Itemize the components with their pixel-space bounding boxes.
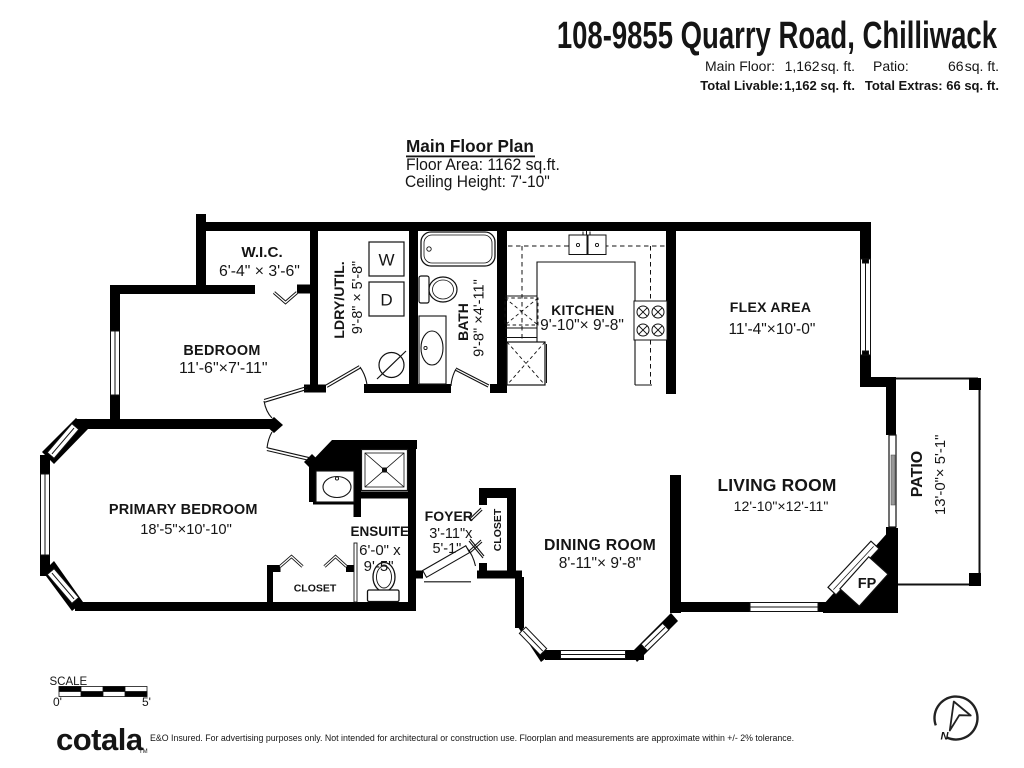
svg-text:Ceiling Height: 7'-10": Ceiling Height: 7'-10" [405, 172, 550, 191]
svg-text:9'-10"× 9'-8": 9'-10"× 9'-8" [540, 317, 624, 334]
svg-text:11'-6"×7'-11": 11'-6"×7'-11" [179, 360, 267, 377]
svg-text:ENSUITE: ENSUITE [351, 524, 410, 539]
svg-text:W.I.C.: W.I.C. [241, 244, 282, 261]
svg-text:BEDROOM: BEDROOM [183, 343, 260, 359]
svg-text:66 sq. ft.: 66 sq. ft. [948, 58, 999, 74]
svg-text:BATH: BATH [455, 303, 471, 341]
svg-text:6'-4" × 3'-6": 6'-4" × 3'-6" [219, 263, 300, 280]
svg-text:18'-5"×10'-10": 18'-5"×10'-10" [140, 522, 232, 538]
svg-text:PATIO: PATIO [909, 451, 926, 498]
svg-text:Total Extras: 66 sq. ft.: Total Extras: 66 sq. ft. [865, 78, 999, 93]
svg-text:PRIMARY BEDROOM: PRIMARY BEDROOM [109, 502, 258, 518]
svg-text:W: W [378, 251, 394, 270]
svg-text:E&O Insured. For advertising p: E&O Insured. For advertising purposes on… [150, 733, 794, 743]
svg-text:CLOSET: CLOSET [294, 583, 337, 595]
svg-text:11'-4"×10'-0": 11'-4"×10'-0" [728, 321, 815, 338]
svg-text:CLOSET: CLOSET [492, 508, 504, 551]
svg-text:9'-8" ×4'-11": 9'-8" ×4'-11" [472, 279, 488, 357]
svg-text:LDRY/UTIL.: LDRY/UTIL. [332, 261, 348, 339]
svg-text:Main Floor:: Main Floor: [705, 58, 775, 74]
svg-text:9'-8" × 5'-8": 9'-8" × 5'-8" [350, 261, 366, 334]
svg-text:13'-0"× 5'-1": 13'-0"× 5'-1" [933, 435, 949, 515]
svg-text:12'-10"×12'-11": 12'-10"×12'-11" [734, 498, 829, 514]
svg-text:FP: FP [858, 576, 877, 592]
svg-text:8'-11"× 9'-8": 8'-11"× 9'-8" [559, 555, 642, 572]
svg-text:LIVING ROOM: LIVING ROOM [717, 475, 836, 495]
svg-text:Floor Area: 1162 sq.ft.: Floor Area: 1162 sq.ft. [406, 155, 560, 174]
svg-text:FLEX AREA: FLEX AREA [730, 299, 812, 315]
svg-text:TM: TM [139, 749, 148, 755]
svg-text:Main Floor Plan: Main Floor Plan [406, 136, 534, 156]
svg-text:Patio:: Patio: [873, 58, 909, 74]
svg-text:3'-11"x: 3'-11"x [429, 526, 473, 542]
svg-text:DINING ROOM: DINING ROOM [544, 537, 656, 554]
svg-text:cotala: cotala [56, 722, 144, 757]
svg-text:D: D [380, 291, 392, 310]
svg-text:FOYER: FOYER [425, 508, 473, 524]
svg-text:5'-1": 5'-1" [432, 541, 461, 557]
svg-text:1,162 sq. ft.: 1,162 sq. ft. [785, 58, 855, 74]
svg-text:Total Livable: 1,162 sq. ft.: Total Livable: 1,162 sq. ft. [700, 78, 855, 93]
svg-text:6'-0" x: 6'-0" x [359, 542, 401, 559]
svg-text:0': 0' [53, 695, 62, 709]
svg-text:N: N [941, 731, 950, 743]
svg-text:108-9855 Quarry Road, Chilliwa: 108-9855 Quarry Road, Chilliwack [557, 15, 998, 57]
svg-text:KITCHEN: KITCHEN [551, 303, 614, 318]
svg-text:9'-5": 9'-5" [364, 558, 394, 575]
svg-text:5': 5' [142, 695, 151, 709]
